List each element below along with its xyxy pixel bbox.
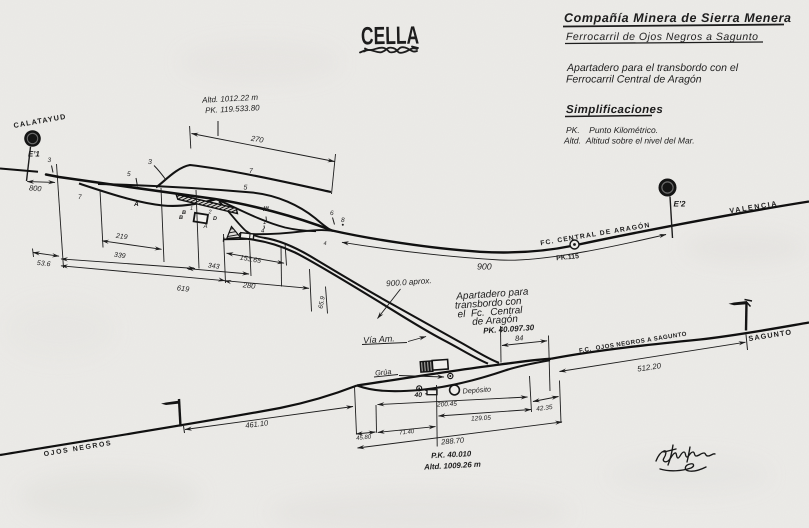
svg-text:A: A bbox=[203, 223, 208, 230]
svg-text:900: 900 bbox=[477, 262, 492, 272]
svg-text:A: A bbox=[133, 201, 139, 208]
svg-text:200.45: 200.45 bbox=[436, 401, 458, 409]
svg-text:5: 5 bbox=[244, 185, 248, 192]
svg-text:D: D bbox=[213, 216, 217, 222]
svg-text:280: 280 bbox=[241, 280, 256, 291]
svg-text:Compañía Minera de Sierra Mene: Compañía Minera de Sierra Menera bbox=[564, 11, 792, 25]
svg-text:1: 1 bbox=[263, 219, 266, 226]
svg-text:3: 3 bbox=[48, 157, 52, 164]
svg-text:2: 2 bbox=[208, 210, 212, 216]
svg-text:B: B bbox=[179, 215, 183, 221]
svg-text:343: 343 bbox=[207, 262, 220, 270]
svg-text:Ferrocarril Central de Aragón: Ferrocarril Central de Aragón bbox=[566, 74, 702, 86]
svg-text:129.05: 129.05 bbox=[471, 415, 492, 423]
svg-text:Altd. Altitud sobre el nivel: Altd. Altitud sobre el nivel del Mar. bbox=[563, 136, 695, 146]
svg-text:5: 5 bbox=[127, 171, 131, 178]
svg-text:4: 4 bbox=[324, 241, 327, 247]
svg-text:84: 84 bbox=[515, 333, 524, 343]
svg-text:53.6: 53.6 bbox=[36, 260, 50, 268]
svg-text:PK. Punto Kilométrico.: PK. Punto Kilométrico. bbox=[566, 125, 658, 135]
svg-text:III.: III. bbox=[263, 206, 271, 213]
svg-text:40: 40 bbox=[414, 392, 423, 399]
svg-text:7: 7 bbox=[78, 194, 82, 201]
svg-text:Simplificaciones: Simplificaciones bbox=[566, 104, 663, 116]
svg-text:619: 619 bbox=[176, 283, 190, 294]
svg-text:Ferrocarril de Ojos Negros a S: Ferrocarril de Ojos Negros a Sagunto bbox=[566, 31, 759, 43]
svg-text:339: 339 bbox=[113, 252, 126, 260]
svg-text:1: 1 bbox=[190, 206, 193, 212]
svg-text:8: 8 bbox=[341, 217, 345, 224]
svg-text:6: 6 bbox=[330, 210, 334, 217]
svg-text:3: 3 bbox=[148, 159, 152, 166]
svg-text:800: 800 bbox=[29, 183, 43, 193]
svg-text:E’2: E’2 bbox=[674, 200, 687, 209]
svg-text:CELLA: CELLA bbox=[361, 21, 419, 50]
svg-text:E’1: E’1 bbox=[28, 150, 40, 159]
svg-text:Apartadero para el transbordo: Apartadero para el transbordo con el bbox=[566, 62, 739, 74]
